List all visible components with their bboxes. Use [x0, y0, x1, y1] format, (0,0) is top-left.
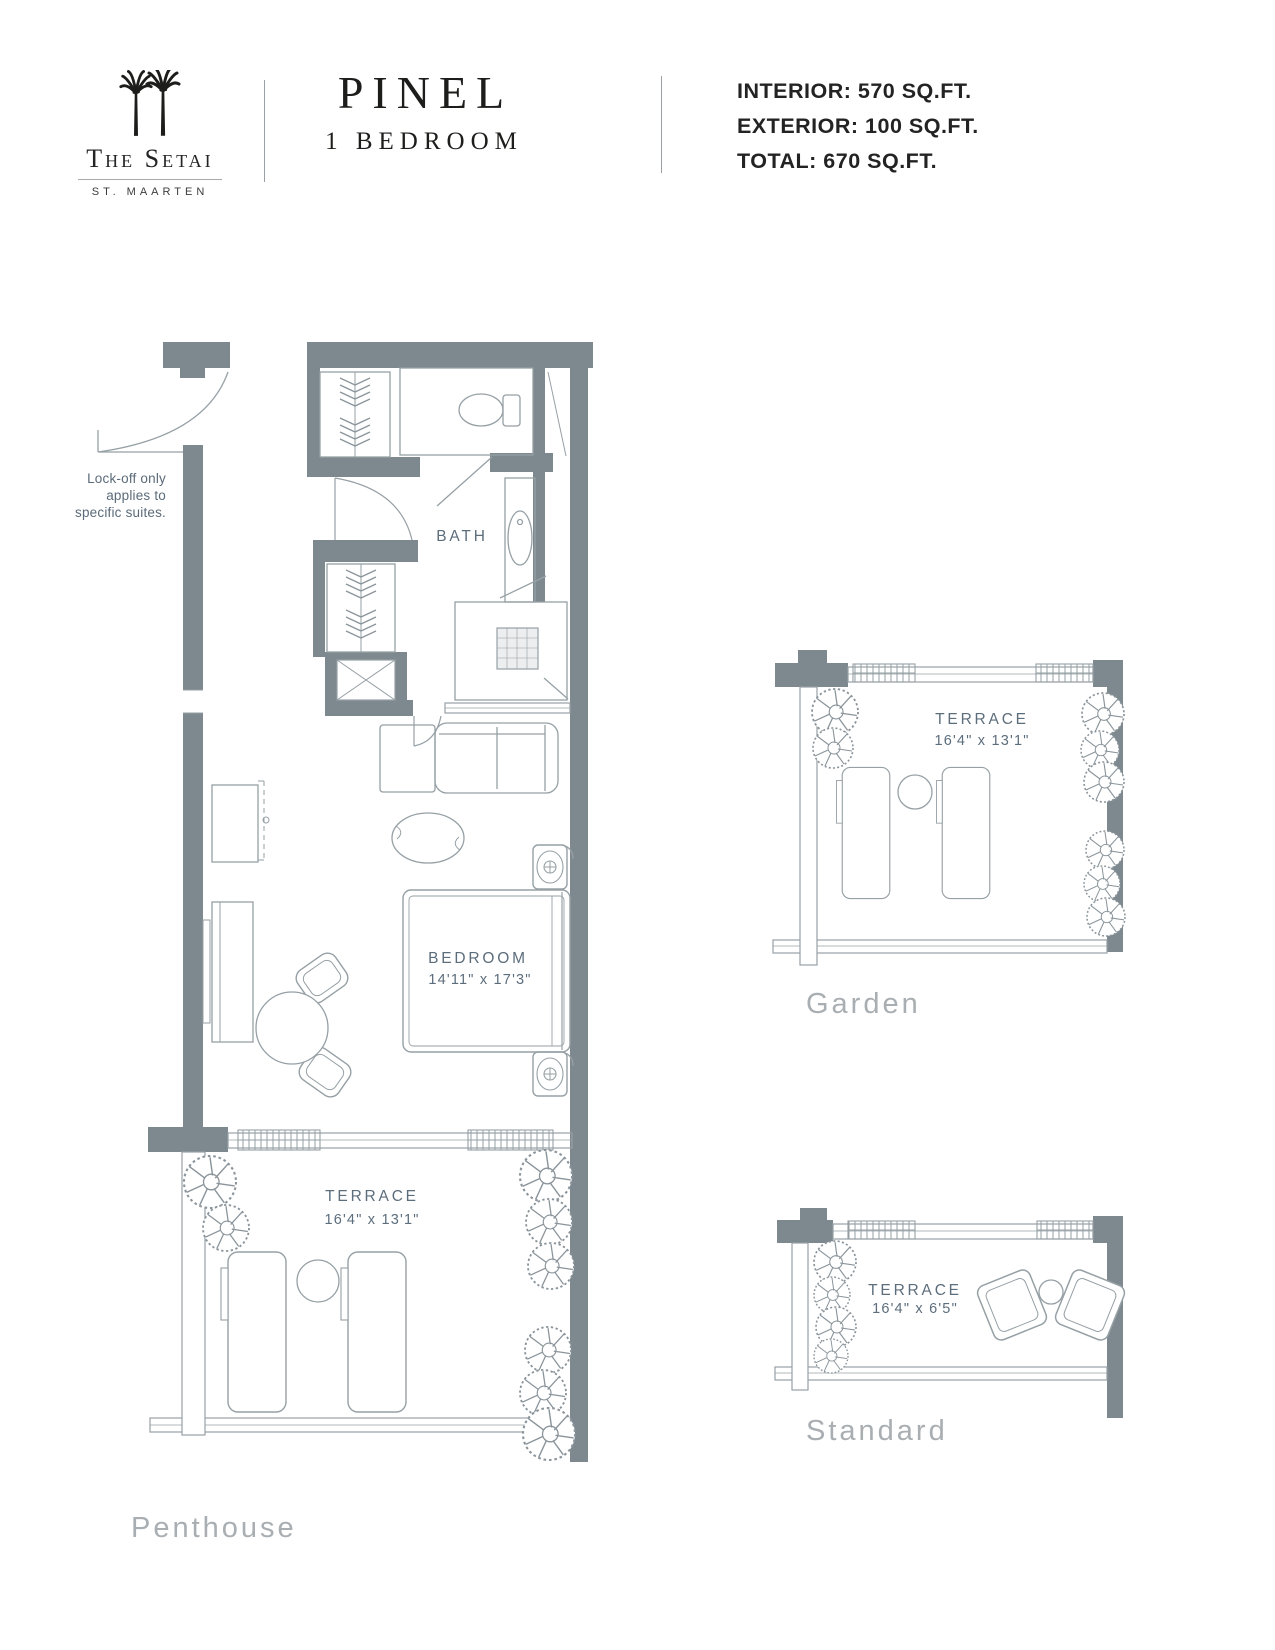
terrace-door-rail [228, 1130, 572, 1150]
sofa [380, 723, 558, 793]
console-desk [203, 902, 253, 1042]
sink-fixture-2 [533, 1052, 573, 1096]
penthouse-loungers [221, 1252, 406, 1412]
bath-label: BATH [436, 528, 487, 545]
standard-terrace: TERRACE 16'4" x 6'5" Standard [775, 1208, 1127, 1447]
garden-terrace-label: TERRACE [935, 711, 1029, 728]
bed [403, 890, 570, 1052]
shower [455, 576, 568, 700]
header-divider-1 [264, 80, 265, 182]
lockoff-note-line1: Lock-off only [38, 470, 166, 487]
lockoff-note-line2: applies to [38, 487, 166, 504]
closet-a [320, 372, 390, 457]
plan-title: PINEL [292, 66, 550, 119]
bath-door [335, 478, 412, 540]
area-stats: INTERIOR: 570 SQ.FT. EXTERIOR: 100 SQ.FT… [737, 74, 979, 179]
coffee-table [392, 813, 464, 863]
dining-set [256, 949, 355, 1101]
brand-logo: The Setai ST. MAARTEN [70, 70, 230, 198]
stat-interior: INTERIOR: 570 SQ.FT. [737, 74, 979, 109]
standard-terrace-dims: 16'4" x 6'5" [872, 1301, 958, 1317]
penthouse-terrace-label: TERRACE [325, 1188, 419, 1205]
toilet-room [400, 368, 533, 506]
floor-plan-drawing: BATH [0, 0, 1275, 1650]
logo-rule [78, 179, 222, 180]
stat-exterior: EXTERIOR: 100 SQ.FT. [737, 109, 979, 144]
sink-fixture-1 [533, 845, 573, 889]
brand-name: The Setai [70, 144, 230, 174]
standard-chairs [975, 1268, 1127, 1343]
brand-location: ST. MAARTEN [70, 186, 230, 198]
penthouse-terrace-dims: 16'4" x 13'1" [324, 1212, 419, 1228]
floorplan-page: BATH [0, 0, 1275, 1650]
garden-floor-label: Garden [806, 988, 921, 1020]
bath-bedroom-partition [414, 703, 570, 746]
standard-terrace-label: TERRACE [868, 1282, 962, 1299]
lockoff-note: Lock-off only applies to specific suites… [38, 470, 166, 521]
bedroom-dims: 14'11" x 17'3" [428, 972, 531, 988]
lockoff-note-line3: specific suites. [38, 504, 166, 521]
garden-loungers [836, 767, 989, 898]
lockoff-door-jambs [183, 690, 203, 713]
penthouse-terrace: TERRACE 16'4" x 13'1" Penthouse [131, 1150, 575, 1544]
title-block: PINEL 1 BEDROOM [292, 66, 550, 156]
elevator-shaft [337, 660, 395, 700]
toilet-icon [459, 394, 503, 426]
chase-diagonal [548, 372, 566, 456]
entry-door [98, 372, 228, 452]
bedroom-label: BEDROOM [428, 950, 528, 967]
dresser [212, 781, 269, 862]
penthouse-floor-label: Penthouse [131, 1512, 297, 1544]
closet-b [327, 564, 395, 652]
garden-terrace-dims: 16'4" x 13'1" [934, 733, 1029, 749]
palm-trees-icon [116, 70, 184, 142]
header-divider-2 [661, 76, 662, 173]
standard-floor-label: Standard [806, 1415, 948, 1447]
garden-terrace: TERRACE 16'4" x 13'1" Garden [773, 650, 1125, 1020]
plan-subtitle: 1 BEDROOM [292, 128, 550, 156]
stat-total: TOTAL: 670 SQ.FT. [737, 144, 979, 179]
standard-plants [814, 1241, 856, 1373]
